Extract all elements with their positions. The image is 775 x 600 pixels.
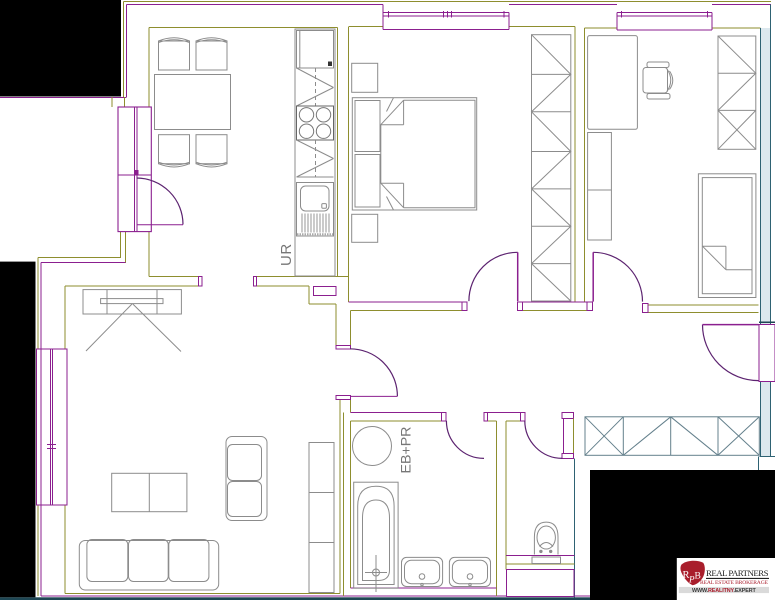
svg-text:UR: UR bbox=[278, 243, 295, 266]
svg-text:WWW.REALITNY.EXPERT: WWW.REALITNY.EXPERT bbox=[692, 588, 757, 594]
svg-text:REAL PARTNERS: REAL PARTNERS bbox=[706, 568, 769, 578]
svg-text:EB+PR: EB+PR bbox=[399, 427, 415, 474]
svg-text:REAL ESTATE BROKERAGE: REAL ESTATE BROKERAGE bbox=[700, 580, 769, 586]
